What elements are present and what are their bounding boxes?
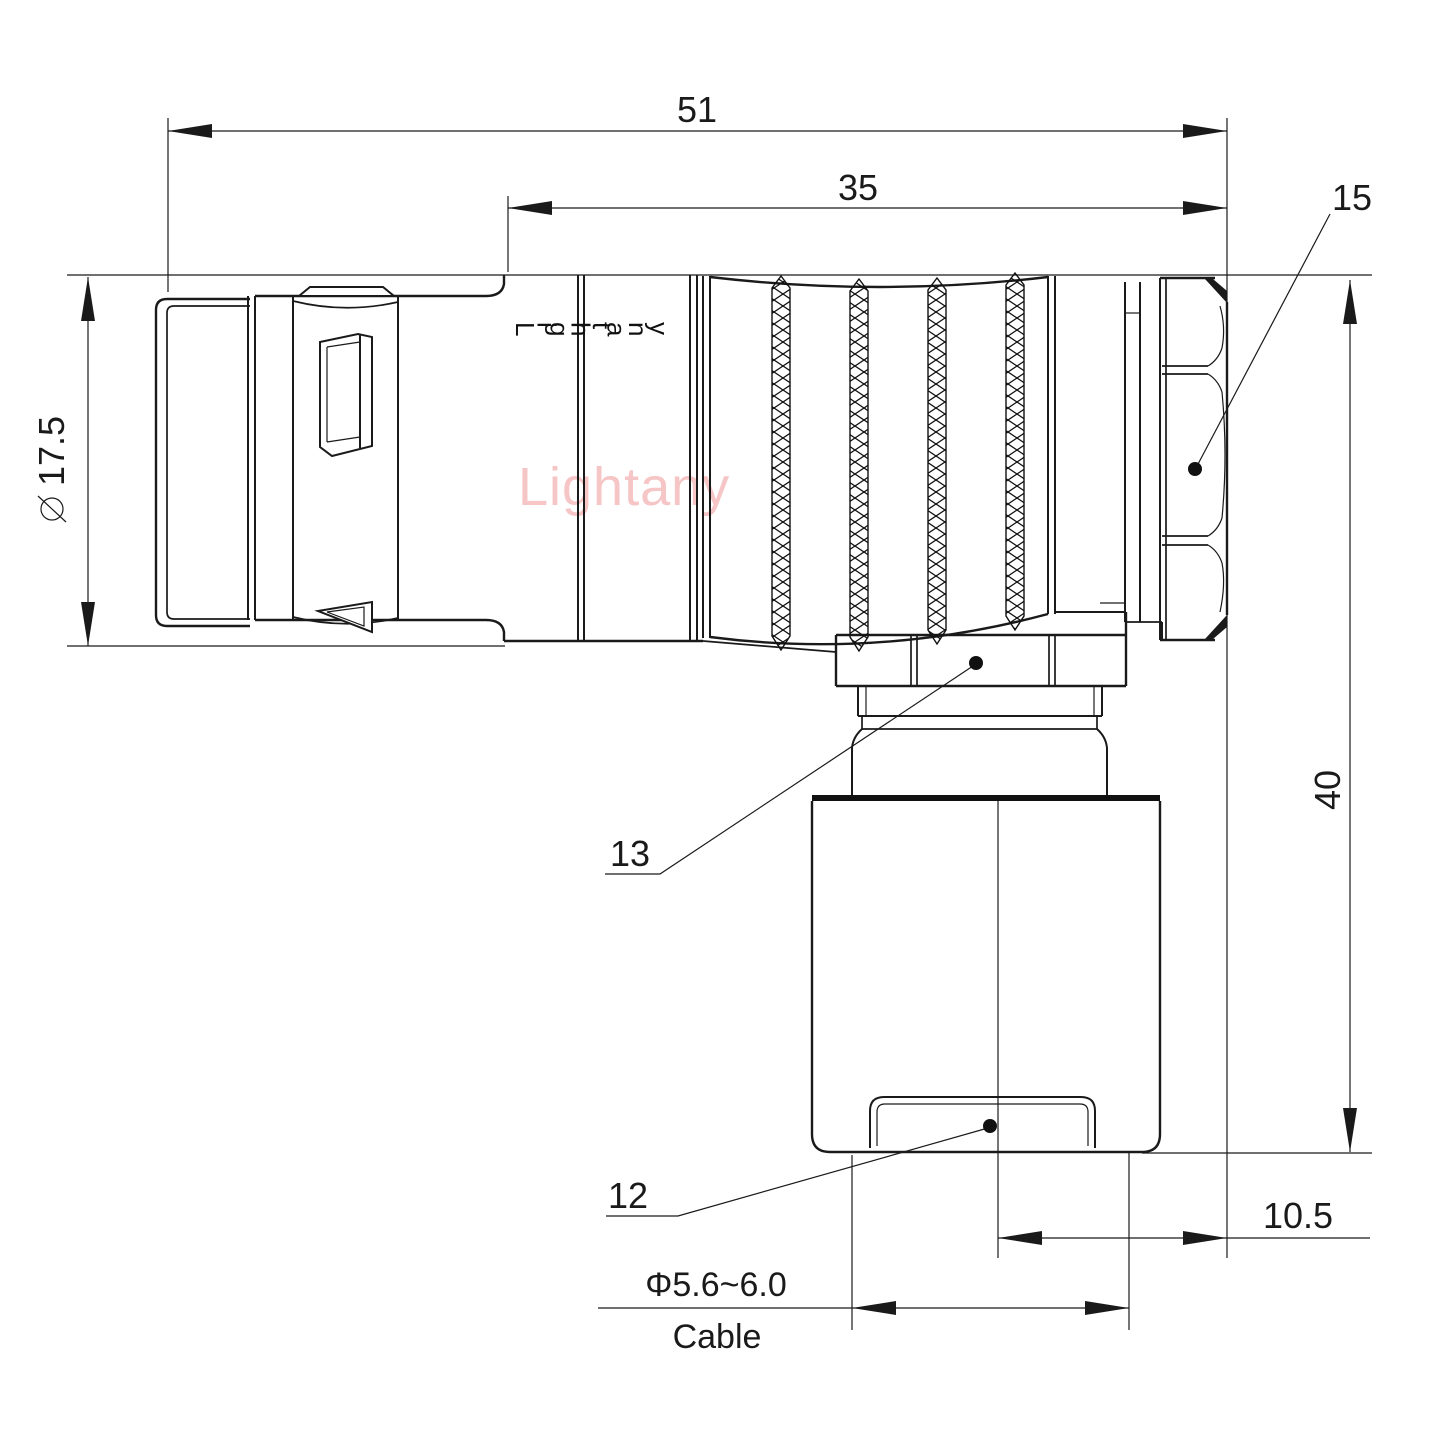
dim-overall-length-value: 51	[677, 89, 717, 130]
leader-dot-12	[983, 1119, 997, 1133]
elbow-down-leg	[703, 603, 1162, 1152]
front-cap	[156, 296, 255, 626]
nut-chamfer-bottom	[1205, 615, 1227, 639]
dim-cable-diameter-value: Φ5.6~6.0	[645, 1266, 787, 1304]
dim-overall-length: 51	[168, 89, 1227, 138]
watermark: Lightany	[518, 457, 730, 517]
knurl-strip	[850, 279, 868, 651]
cable-word: Cable	[673, 1318, 762, 1356]
knurl-strip	[772, 276, 790, 650]
leader-back-nut: 15	[1188, 177, 1372, 476]
drawing-canvas: Lightany	[0, 0, 1440, 1440]
cylinder-top-band	[812, 795, 1160, 801]
dim-height-value: 40	[1307, 770, 1348, 810]
brand-engraving: Lightany	[510, 322, 674, 343]
cable-cutout	[870, 1097, 1095, 1148]
knurl-strip	[1006, 273, 1024, 630]
cable-clamp-body	[812, 795, 1160, 1152]
label-cable-clamp: 12	[608, 1175, 648, 1216]
dim-axis-to-back-value: 10.5	[1263, 1195, 1333, 1236]
technical-drawing: Lightany	[0, 0, 1440, 1440]
leader-cable-clamp: 12	[606, 1119, 997, 1216]
extension-lines	[67, 118, 1372, 1330]
dim-axis-to-back: 10.5	[998, 1195, 1370, 1245]
leader-dot-13	[969, 656, 983, 670]
dim-front-diameter-value: 17.5	[31, 416, 72, 486]
leader-coupling-nut: 13	[605, 656, 983, 874]
knurl-strip	[928, 278, 946, 644]
dim-rear-length: 35	[508, 167, 1227, 215]
latch-window	[320, 334, 372, 456]
elbow-collar	[852, 686, 1107, 795]
dim-rear-length-value: 35	[838, 167, 878, 208]
leader-dot-15	[1188, 462, 1202, 476]
latch-tab	[299, 287, 394, 296]
back-hex-nut	[1160, 278, 1227, 640]
knurl-grip	[703, 273, 1055, 651]
dim-height: 40	[1307, 280, 1357, 1152]
label-back-nut: 15	[1332, 177, 1372, 218]
nut-chamfer-top	[1205, 279, 1227, 303]
back-collar	[1125, 282, 1140, 622]
dim-cable-diameter: Φ5.6~6.0 Cable	[598, 1266, 1129, 1356]
dim-front-diameter: 17.5	[31, 277, 95, 646]
label-coupling-nut: 13	[610, 833, 650, 874]
latch-sleeve	[255, 275, 504, 641]
